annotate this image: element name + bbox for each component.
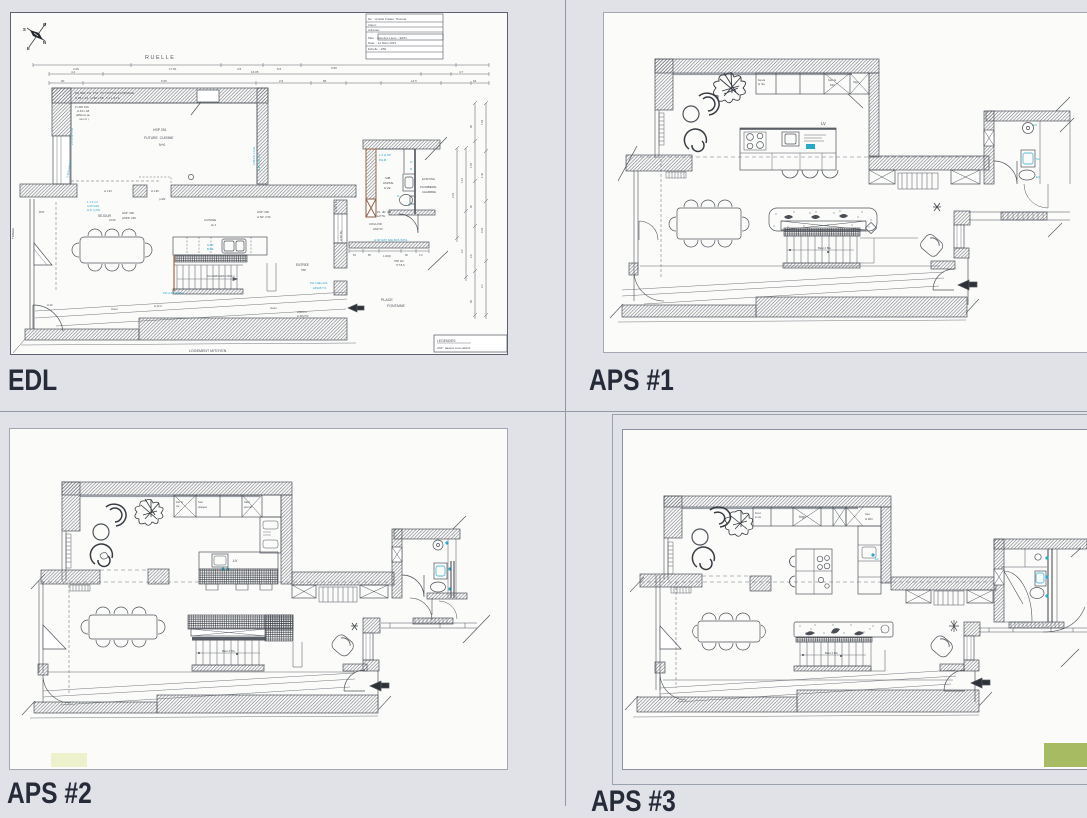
svg-text:Bétó 2 Bis: Bétó 2 Bis [222,649,235,653]
svg-text:1.00(h): 1.00(h) [383,255,391,258]
svg-text:8.6: 8.6 [277,67,282,71]
svg-text:H.VE: H.VE [384,186,391,190]
svg-text:H.SP H(P) SdE B.PL B.Pts: H.SP H(P) SdE B.PL B.Pts [374,238,408,242]
svg-text:4.5: 4.5 [237,67,242,71]
svg-text:90: 90 [405,254,408,257]
svg-text:plaque: plaque [198,505,207,509]
svg-text:p.GM: p.GM [159,197,165,201]
svg-text:O: O [43,22,47,27]
svg-text:COULOIR: COULOIR [369,222,382,226]
svg-text:H.40: H.40 [47,303,53,307]
svg-text:E: E [27,46,30,51]
svg-text:6.05: 6.05 [161,79,167,83]
svg-text:SdB: SdB [385,176,390,180]
svg-text:Client :: Client : [368,23,378,27]
svg-text:HSP/3.0: HSP/3.0 [297,310,307,314]
svg-text:four &: four & [828,78,836,82]
svg-text:1.55: 1.55 [469,162,473,168]
svg-text:2.9: 2.9 [279,79,284,83]
svg-text:1.40: 1.40 [480,172,484,178]
svg-text:mur nt ): mur nt ) [79,117,89,121]
svg-text:PH. LNE H.PL: PH. LNE H.PL [310,281,328,285]
svg-text:Plan : Etat des Lieux – EDTL: Plan : Etat des Lieux – EDTL [368,36,408,40]
svg-text:& rite: & rite [758,82,765,86]
svg-text:EV: EV [1033,123,1037,127]
svg-text:H.SP 2.0: H.SP 2.0 [334,201,338,212]
svg-text:ENTREE: ENTREE [296,263,309,267]
svg-text:4.04: 4.04 [480,227,484,233]
svg-text:à viv: à viv [755,515,762,519]
svg-text:HSP 110: HSP 110 [394,260,404,263]
svg-text:17.81: 17.81 [169,67,177,71]
svg-text:1.93: 1.93 [480,119,484,125]
svg-text:Dis MARCHES h.BAS 1: Dis MARCHES h.BAS 1 [207,274,235,278]
svg-text:1.15: 1.15 [460,177,464,183]
svg-text:SEJOUR: SEJOUR [98,214,112,218]
svg-text:H.SPу/TR: H.SPу/TR [297,314,309,318]
svg-text:HSP: 290: HSP: 290 [257,210,269,214]
svg-text:16.05: 16.05 [251,70,259,74]
svg-text:H.95 L.60 PH: H.95 L.60 PH [257,154,261,171]
svg-text:90: 90 [469,205,473,208]
svg-text:O: O [410,160,413,164]
svg-text:HSP: HSP [301,269,306,272]
svg-text:four: four [198,500,203,504]
svg-text:H.12.0: H.12.0 [154,304,162,308]
svg-text:96: 96 [469,300,473,303]
svg-text:HSP/DE: HSP/DE [383,181,394,185]
svg-text:H 1.89: H 1.89 [151,189,159,193]
svg-text:FUTURE CUISINE: FUTURE CUISINE [144,136,174,140]
svg-text:85: 85 [368,254,371,257]
svg-text:H 1.93: H 1.93 [104,189,112,193]
svg-text:PH H.SP H(P)H: PH H.SP H(P)H [163,291,183,295]
svg-text:De : Amelie Fowler, Thomas: De : Amelie Fowler, Thomas [368,17,407,21]
svg-text:HSP 03: HSP 03 [373,227,383,231]
svg-text:four: four [865,512,870,516]
svg-text:haut: haut [244,500,250,504]
svg-text:MO: MO [830,83,835,87]
svg-text:LV: LV [821,121,826,126]
svg-text:H.R. Q PH: H.R. Q PH [87,208,100,212]
svg-text:PH.B: PH.B [379,158,386,162]
svg-text:2.0: 2.0 [419,254,423,257]
svg-text:HSP: 306: HSP: 306 [122,211,134,215]
svg-text:Echelle : 1/50: Echelle : 1/50 [368,47,387,51]
svg-text:EV: EV [875,557,879,561]
svg-text:4.2: 4.2 [71,70,76,74]
svg-text:LEGENDES: LEGENDES [437,339,456,343]
svg-text:FONTAINE: FONTAINE [387,304,406,308]
svg-text:ΔPH.B.T.S: ΔPH.B.T.S [313,286,326,290]
svg-text:H.SP: 2.56: H.SP: 2.56 [257,215,271,219]
svg-text:CUISINE: CUISINE [204,218,216,222]
svg-text:86: 86 [323,79,327,83]
svg-text:An 0: An 0 [211,224,217,227]
svg-text:N: N [43,40,46,45]
svg-text:PLACE: PLACE [381,298,393,302]
svg-text:Date : 12 Mars 2023: Date : 12 Mars 2023 [368,41,396,45]
svg-text:HSP : Hauteur sous plafond: HSP : Hauteur sous plafond [437,346,471,350]
svg-text:SU: SU [1036,157,1040,161]
svg-text:B.RE: B.RE [207,247,214,251]
svg-text:2.0: 2.0 [480,284,484,288]
svg-text:O: O [397,194,400,198]
svg-text:à.PTG: à.PTG [377,214,385,218]
svg-text:2.2 H.SP 1.96: 2.2 H.SP 1.96 [70,127,74,145]
svg-text:EXISTING: EXISTING [422,177,435,181]
svg-text:90: 90 [61,79,65,83]
svg-text:LV: LV [233,559,238,563]
svg-text:2.05: 2.05 [451,192,455,198]
svg-text:HSP 251: HSP 251 [153,128,167,132]
svg-text:RST: RST [39,210,45,214]
svg-text:N+0: N+0 [159,143,165,147]
svg-text:64: 64 [473,79,477,83]
svg-text:PH NEF PH 3.51 PO NOTICE 23.: PH NEF PH 3.51 PO NOTICE 23.PENDUE [75,91,134,95]
svg-text:JOUR: JOUR [109,219,116,222]
svg-text:14.5: 14.5 [411,79,417,83]
svg-text:H.SP PH: H.SP PH [339,231,343,241]
svg-text:& MO: & MO [865,517,873,521]
svg-text:Avant: Avant [111,307,118,311]
svg-text:4.7: 4.7 [459,70,464,74]
svg-text:Bétó 2 Bis: Bétó 2 Bis [825,651,838,655]
svg-text:2.6: 2.6 [469,254,473,258]
svg-text:RUELLE: RUELLE [145,55,175,61]
svg-text:D: D [410,167,413,171]
svg-text:plomb: plomb [244,505,253,509]
svg-text:Bétó 2 Bis: Bétó 2 Bis [818,246,831,250]
svg-text:CHAMBRE: CHAMBRE [422,190,436,194]
svg-text:LOGEMENT MITOYEN: LOGEMENT MITOYEN [189,349,227,353]
svg-text:frigo: frigo [853,80,859,84]
svg-text:4.2: 4.2 [460,249,464,253]
svg-text:H.T B.S: H.T B.S [396,264,405,267]
svg-text:frigo: frigo [799,515,806,519]
svg-text:54: 54 [353,254,356,257]
svg-text:HSPP: 236: HSPP: 236 [122,216,136,220]
svg-text:H.95 L.63 H.95 L.65 5.1 L.: H.95 L.63 H.95 L.65 5.1 L.61.9 [75,96,120,100]
svg-text:TRAVEE: TRAVEE [11,228,15,239]
svg-text:1.2 H.SP: 1.2 H.SP [379,153,391,157]
svg-text:S: S [23,27,26,32]
svg-text:6.80: 6.80 [331,66,337,70]
svg-text:96: 96 [469,125,473,128]
svg-text:2.88 PH 1.0 AL: 2.88 PH 1.0 AL [252,146,256,165]
svg-text:Adresse:: Adresse: [368,28,380,32]
svg-text:rte: rte [176,504,180,508]
svg-text:EV: EV [1036,175,1040,179]
svg-text:PLOMBERIE: PLOMBERIE [420,185,436,189]
svg-text:Avant: Avant [270,306,277,310]
